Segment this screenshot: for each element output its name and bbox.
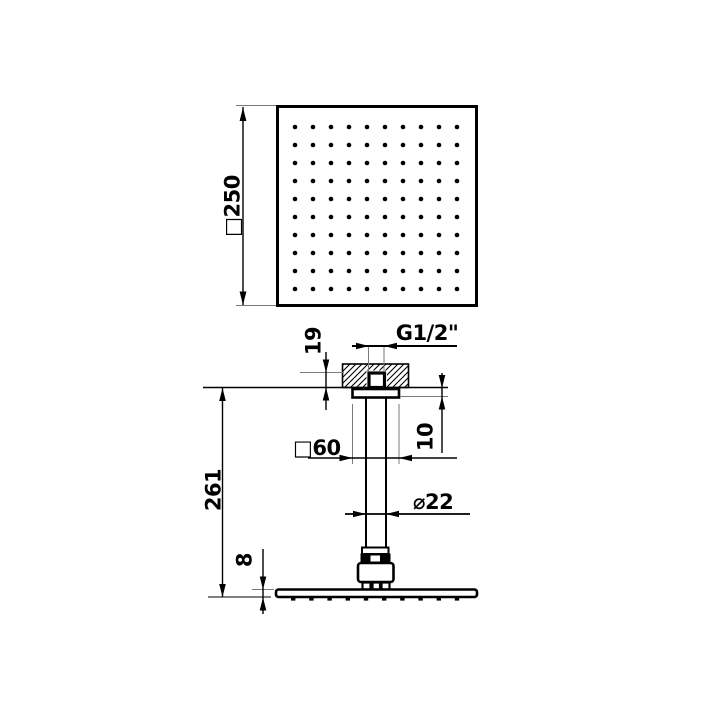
nozzle-dot <box>437 161 442 166</box>
nozzle-dot <box>437 143 442 148</box>
nozzle-dot <box>311 143 316 148</box>
nozzle-tick <box>364 597 368 600</box>
nozzle-dot <box>383 251 388 256</box>
nozzle-dot <box>293 161 298 166</box>
nozzle-dot <box>383 233 388 238</box>
nozzle-dot <box>329 287 334 292</box>
arrowhead-right <box>356 343 369 350</box>
head-plate-side <box>276 590 477 598</box>
technical-drawing-page: □250 G1/2" <box>0 0 720 720</box>
nozzle-tick <box>327 597 331 600</box>
nozzle-dot <box>365 197 370 202</box>
nozzle-dot <box>401 215 406 220</box>
nozzle-dot <box>311 215 316 220</box>
nozzle-dot <box>437 233 442 238</box>
nozzle-dot <box>455 125 460 130</box>
thread-nipple <box>369 373 385 388</box>
dimension-label-250: □250 <box>220 175 244 237</box>
nozzle-dot <box>401 287 406 292</box>
nozzle-dot <box>419 179 424 184</box>
nozzle-dot <box>365 269 370 274</box>
nozzle-dot <box>347 269 352 274</box>
nozzle-dot <box>437 215 442 220</box>
nozzle-dot <box>329 251 334 256</box>
nozzle-dot <box>365 287 370 292</box>
nozzle-dot <box>347 233 352 238</box>
arrowhead-left <box>386 511 399 518</box>
nozzle-dot <box>347 143 352 148</box>
shower-head-drawing: □250 G1/2" <box>0 0 720 720</box>
nozzle-dot <box>311 269 316 274</box>
nozzle-dot <box>347 215 352 220</box>
nozzle-dot <box>401 179 406 184</box>
nozzle-dot <box>329 197 334 202</box>
shower-face-outline <box>278 107 477 306</box>
nozzle-dot <box>383 215 388 220</box>
nozzle-dot <box>401 251 406 256</box>
top-view: □250 <box>220 106 476 306</box>
nozzle-dot <box>383 143 388 148</box>
nozzle-dot <box>365 125 370 130</box>
nozzle-dot <box>455 215 460 220</box>
arrowhead-down <box>323 360 330 373</box>
nozzle-dot <box>419 143 424 148</box>
nozzle-tick <box>346 597 350 600</box>
nozzle-dot <box>293 179 298 184</box>
nozzle-dot <box>293 143 298 148</box>
nozzle-dot <box>383 179 388 184</box>
shower-arm-pipe <box>366 398 386 549</box>
nozzle-dot <box>365 143 370 148</box>
nozzle-dot <box>365 215 370 220</box>
dimension-label-10: 10 <box>413 423 437 451</box>
dimension-8: 8 <box>232 549 274 614</box>
nozzle-dot <box>401 143 406 148</box>
nozzle-tick <box>437 597 441 600</box>
nozzle-dot <box>329 233 334 238</box>
nozzle-dot <box>401 125 406 130</box>
dimension-label-261: 261 <box>201 469 225 511</box>
nozzle-tick <box>309 597 313 600</box>
nozzle-dot <box>311 197 316 202</box>
nozzle-dot <box>401 161 406 166</box>
nozzle-dot <box>437 197 442 202</box>
nozzle-dot <box>419 251 424 256</box>
nozzle-dot <box>419 269 424 274</box>
nozzle-dot <box>293 269 298 274</box>
nozzle-dot <box>365 179 370 184</box>
nozzle-dot <box>347 287 352 292</box>
nozzle-dot <box>311 161 316 166</box>
nozzle-tick <box>400 597 404 600</box>
dimension-label-19: 19 <box>301 327 325 355</box>
arrowhead-up <box>240 108 247 122</box>
dimension-19: 19 <box>300 327 344 410</box>
nozzle-dot <box>383 125 388 130</box>
nozzle-dot <box>437 179 442 184</box>
nozzle-dot <box>383 197 388 202</box>
nozzle-dot <box>419 161 424 166</box>
nozzle-dot <box>455 143 460 148</box>
nozzle-dot <box>329 179 334 184</box>
nozzle-dot <box>437 125 442 130</box>
nozzle-dot <box>383 287 388 292</box>
arrowhead-right <box>353 511 366 518</box>
nozzle-dot <box>311 287 316 292</box>
nozzle-dot <box>383 269 388 274</box>
nozzle-dot <box>347 125 352 130</box>
nozzle-tick <box>382 597 386 600</box>
nozzle-dot <box>455 197 460 202</box>
nozzle-dot <box>311 233 316 238</box>
arrowhead-up <box>439 397 446 410</box>
arrowhead-up <box>219 388 226 401</box>
nozzle-dot <box>455 287 460 292</box>
nozzle-dot <box>329 161 334 166</box>
arrowhead-down <box>240 292 247 306</box>
side-view: G1/2" 19 10 □60 <box>201 321 477 614</box>
nozzle-dot <box>419 233 424 238</box>
connector-nut-notch <box>371 556 381 562</box>
dimension-label-8: 8 <box>232 553 256 567</box>
dimension-250: □250 <box>220 106 276 306</box>
nozzle-dot <box>329 125 334 130</box>
nozzle-dot <box>347 179 352 184</box>
ceiling-rosette <box>353 389 400 398</box>
nozzle-dot <box>455 269 460 274</box>
nozzle-dot <box>419 287 424 292</box>
nozzle-dot <box>293 251 298 256</box>
nozzle-tick <box>291 597 295 600</box>
nozzle-dot <box>311 125 316 130</box>
nozzle-dot <box>401 269 406 274</box>
nozzle-dot <box>455 233 460 238</box>
nozzle-dot <box>293 233 298 238</box>
nozzle-dot <box>437 287 442 292</box>
nozzle-dot <box>311 251 316 256</box>
nozzle-dot <box>419 125 424 130</box>
nozzle-dot <box>419 215 424 220</box>
nozzle-tick <box>455 597 459 600</box>
nozzle-dot <box>347 161 352 166</box>
dimension-label-22: ⌀22 <box>413 490 453 514</box>
dimension-22: ⌀22 <box>345 490 470 517</box>
arrowhead-left <box>399 455 412 462</box>
ball-joint-housing <box>358 563 394 582</box>
nozzle-dot <box>329 143 334 148</box>
nozzle-dot <box>365 251 370 256</box>
arrowhead-up <box>323 388 330 401</box>
arrowhead-down <box>260 577 267 590</box>
nozzle-dot <box>365 233 370 238</box>
dimension-label-60: □60 <box>293 436 341 460</box>
arrowhead-down <box>219 584 226 597</box>
nozzle-dot <box>329 215 334 220</box>
nozzle-dot <box>455 179 460 184</box>
nozzle-dot <box>455 251 460 256</box>
connector-ring <box>362 548 389 555</box>
nozzle-tick <box>418 597 422 600</box>
arrowhead-down <box>439 375 446 388</box>
nozzle-dot <box>311 179 316 184</box>
arrowhead-right <box>340 455 353 462</box>
nozzle-dot <box>293 197 298 202</box>
nozzle-dot <box>293 125 298 130</box>
nozzle-dot <box>293 215 298 220</box>
nozzle-dot <box>437 251 442 256</box>
nozzle-dot <box>347 197 352 202</box>
nozzle-dot <box>383 161 388 166</box>
nozzle-dot <box>419 197 424 202</box>
nozzle-dot <box>401 197 406 202</box>
nozzle-dot <box>365 161 370 166</box>
arrowhead-up <box>260 598 267 611</box>
nozzle-dot <box>293 287 298 292</box>
nozzle-dot <box>347 251 352 256</box>
nozzle-dot <box>437 269 442 274</box>
nozzle-dot <box>329 269 334 274</box>
nozzle-dot <box>455 161 460 166</box>
dimension-label-thread: G1/2" <box>396 321 459 345</box>
nozzle-dot <box>401 233 406 238</box>
